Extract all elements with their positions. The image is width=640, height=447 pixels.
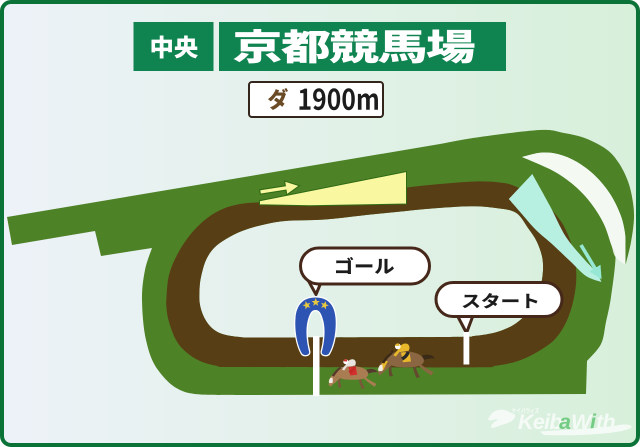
svg-text:Keib: Keib (518, 410, 562, 434)
